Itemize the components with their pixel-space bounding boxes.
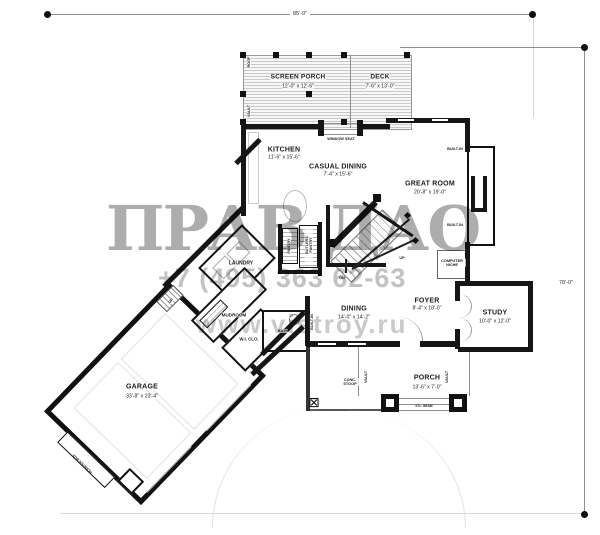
- window: [398, 119, 414, 121]
- porch-post: [341, 52, 347, 58]
- wall: [318, 120, 324, 136]
- walkway-curve: [345, 410, 466, 528]
- vault-label: VAULT: [247, 105, 251, 117]
- dn-arrow: [345, 259, 347, 273]
- room-label-garage: GARAGE: [125, 383, 159, 390]
- door-jamb: [393, 341, 400, 347]
- wall: [241, 124, 322, 129]
- dimension-dot: [581, 44, 588, 51]
- arrowhead: [412, 237, 419, 244]
- room-dim-great-room: 20'-8" x 19'-0": [414, 190, 446, 195]
- built-in-label: BUILT-IN: [447, 223, 463, 227]
- pantry-label: PANTRY: [287, 238, 291, 253]
- wall: [241, 124, 246, 216]
- window-seat-label: WINDOW SEAT: [327, 137, 355, 141]
- extension-line: [533, 14, 534, 118]
- room-dim-foyer: 8'-4" x 18'-0": [412, 306, 441, 311]
- room-dim-garage: 33'-8" x 23'-4": [126, 394, 158, 399]
- dimension-label-width: 85'-9": [290, 11, 310, 17]
- dimension-dot: [529, 11, 536, 18]
- room-label-screen-porch: SCREEN PORCH: [270, 75, 327, 82]
- room-label-foyer: FOYER: [413, 297, 440, 304]
- dimension-dot: [44, 11, 51, 18]
- window: [348, 343, 366, 345]
- floor-plan-sheet: 85'-9" 78'-0" SCREEN PORCH 12'-0" x 12'-…: [0, 0, 600, 535]
- wall: [465, 118, 470, 152]
- room-label-great-room: GREAT ROOM: [404, 180, 456, 187]
- butlers-pantry-label: BUTLERS PANTRY: [305, 228, 313, 262]
- window-seat-line: [324, 134, 357, 135]
- built-in-label: BUILT-IN: [310, 314, 314, 330]
- porch-post: [240, 119, 246, 125]
- window: [318, 343, 336, 345]
- room-dim-casual-dining: 7'-4" x 15'-6": [323, 172, 352, 177]
- watermark-phone: +7 (495) 363 62-63: [158, 263, 406, 294]
- fireplace-side: [483, 176, 487, 212]
- walkway-curve: [212, 408, 333, 528]
- conc-stoop-label: CONC. STOOP: [339, 378, 361, 386]
- electrical-symbol: ⊠: [308, 395, 320, 409]
- planter-box-label: PLANTER BOX: [59, 432, 114, 486]
- porch-slab-line: [399, 410, 449, 411]
- door-swing-arc: [459, 318, 472, 342]
- laundry-label: LAUNDRY: [229, 261, 253, 267]
- room-label-dining: DINING: [340, 305, 368, 312]
- door-swing-arc: [459, 294, 472, 318]
- up-label: UP: [399, 256, 404, 260]
- wall: [455, 281, 460, 301]
- built-in-label: BUILT-IN: [447, 147, 463, 151]
- beam-note: STL. BEAM: [415, 405, 432, 409]
- vault-label: VAULT: [445, 371, 449, 383]
- wall-post: [327, 239, 335, 247]
- mudroom-label: MUDROOM: [222, 312, 247, 317]
- porch-post: [341, 119, 347, 125]
- arrowhead: [404, 212, 411, 219]
- room-label-kitchen: KITCHEN: [267, 146, 302, 153]
- wall: [458, 347, 533, 352]
- kitchen-island: [283, 190, 307, 222]
- porch-post: [306, 52, 312, 58]
- vault-label: VAULT: [364, 371, 368, 383]
- dimension-dot: [581, 511, 588, 518]
- porch-edge: [469, 347, 470, 396]
- porch-post: [240, 91, 246, 97]
- dn-label: DN: [339, 276, 344, 280]
- deck-divider: [350, 55, 351, 128]
- window: [432, 119, 448, 121]
- door-swing-arc: [398, 317, 423, 341]
- porch-column: [449, 394, 467, 412]
- wall-post: [373, 194, 381, 202]
- porch-column: [381, 394, 399, 412]
- wall: [318, 222, 322, 276]
- bath-label: BATH: [278, 329, 288, 333]
- dimension-label-height: 78'-0": [556, 280, 576, 286]
- dimension-line-right-top: [400, 47, 584, 48]
- wall: [278, 224, 282, 274]
- room-label-study: STUDY: [482, 309, 509, 316]
- room-label-casual-dining: CASUAL DINING: [308, 163, 368, 170]
- computer-niche-label: COMPUTER NICHE: [438, 259, 466, 267]
- room-dim-dining: 14'-0" x 14'-2": [338, 315, 370, 320]
- wall: [458, 281, 532, 286]
- roof-label: ROOF: [247, 57, 251, 68]
- porch-post: [240, 52, 246, 58]
- room-dim-screen-porch: 12'-0" x 12'-6": [282, 84, 314, 89]
- porch-post: [404, 52, 410, 58]
- dimension-line-right: [584, 47, 585, 514]
- room-dim-kitchen: 11'-6" x 15'-6": [268, 155, 300, 160]
- wall: [278, 270, 322, 274]
- wi-clo-label: W.I. CLO.: [239, 338, 258, 343]
- room-label-deck: DECK: [369, 75, 390, 82]
- fireplace-back: [471, 208, 487, 212]
- room-dim-deck: 7'-6" x 13'-0": [365, 84, 394, 89]
- room-label-porch: PORCH: [413, 374, 441, 381]
- porch-post: [306, 91, 312, 97]
- wall: [528, 281, 533, 352]
- wall: [363, 124, 390, 129]
- wall: [455, 329, 460, 349]
- porch-post: [273, 52, 279, 58]
- porch-edge: [358, 347, 359, 396]
- fireplace-side: [471, 176, 475, 212]
- stair-wall: [326, 205, 330, 267]
- room-dim-study: 10'-0" x 12'-0": [479, 319, 511, 324]
- porch-slab-line: [399, 398, 449, 399]
- room-dim-porch: 13'-6" x 7'-0": [412, 385, 441, 390]
